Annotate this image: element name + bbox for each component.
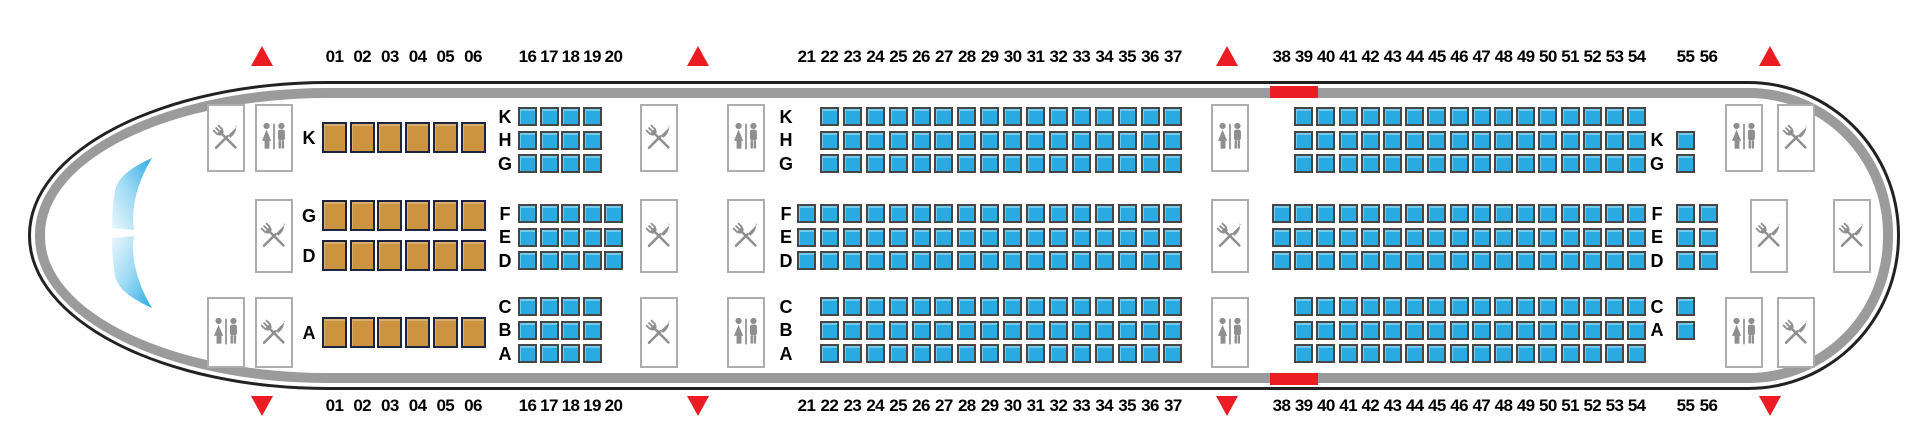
seat-44B[interactable] xyxy=(1405,321,1424,340)
seat-27F[interactable] xyxy=(934,204,953,223)
seat-45D[interactable] xyxy=(1427,251,1446,270)
seat-33F[interactable] xyxy=(1072,204,1091,223)
seat-36G[interactable] xyxy=(1141,154,1160,173)
seat-55C[interactable] xyxy=(1676,297,1695,316)
seat-17D[interactable] xyxy=(540,251,559,270)
seat-19A[interactable] xyxy=(583,344,602,363)
seat-53A[interactable] xyxy=(1605,344,1624,363)
seat-16A[interactable] xyxy=(518,344,537,363)
seat-30C[interactable] xyxy=(1003,297,1022,316)
seat-16C[interactable] xyxy=(518,297,537,316)
seat-19B[interactable] xyxy=(583,321,602,340)
seat-03A[interactable] xyxy=(377,317,402,348)
seat-43E[interactable] xyxy=(1383,228,1402,247)
seat-49C[interactable] xyxy=(1516,297,1535,316)
seat-18G[interactable] xyxy=(561,154,580,173)
seat-19E[interactable] xyxy=(583,228,602,247)
seat-06A[interactable] xyxy=(461,317,486,348)
seat-40H[interactable] xyxy=(1316,131,1335,150)
seat-24A[interactable] xyxy=(866,344,885,363)
seat-17K[interactable] xyxy=(540,107,559,126)
seat-38F[interactable] xyxy=(1272,204,1291,223)
seat-22D[interactable] xyxy=(820,251,839,270)
seat-55D[interactable] xyxy=(1676,251,1695,270)
seat-25G[interactable] xyxy=(889,154,908,173)
seat-44D[interactable] xyxy=(1405,251,1424,270)
seat-32G[interactable] xyxy=(1049,154,1068,173)
seat-29H[interactable] xyxy=(980,131,999,150)
seat-19F[interactable] xyxy=(583,204,602,223)
seat-33H[interactable] xyxy=(1072,131,1091,150)
seat-51F[interactable] xyxy=(1561,204,1580,223)
seat-35K[interactable] xyxy=(1118,107,1137,126)
seat-21E[interactable] xyxy=(797,228,816,247)
seat-49A[interactable] xyxy=(1516,344,1535,363)
seat-56E[interactable] xyxy=(1699,228,1718,247)
seat-42F[interactable] xyxy=(1361,204,1380,223)
seat-48G[interactable] xyxy=(1494,154,1513,173)
seat-16K[interactable] xyxy=(518,107,537,126)
seat-25K[interactable] xyxy=(889,107,908,126)
seat-50K[interactable] xyxy=(1538,107,1557,126)
seat-45K[interactable] xyxy=(1427,107,1446,126)
seat-45C[interactable] xyxy=(1427,297,1446,316)
seat-04K[interactable] xyxy=(405,122,430,153)
seat-52D[interactable] xyxy=(1583,251,1602,270)
seat-04A[interactable] xyxy=(405,317,430,348)
seat-32K[interactable] xyxy=(1049,107,1068,126)
seat-32F[interactable] xyxy=(1049,204,1068,223)
seat-53H[interactable] xyxy=(1605,131,1624,150)
seat-23D[interactable] xyxy=(843,251,862,270)
seat-47C[interactable] xyxy=(1472,297,1491,316)
seat-18A[interactable] xyxy=(561,344,580,363)
seat-18D[interactable] xyxy=(561,251,580,270)
seat-40G[interactable] xyxy=(1316,154,1335,173)
seat-48H[interactable] xyxy=(1494,131,1513,150)
seat-38D[interactable] xyxy=(1272,251,1291,270)
seat-32H[interactable] xyxy=(1049,131,1068,150)
seat-31B[interactable] xyxy=(1026,321,1045,340)
seat-22F[interactable] xyxy=(820,204,839,223)
seat-45E[interactable] xyxy=(1427,228,1446,247)
seat-34A[interactable] xyxy=(1095,344,1114,363)
seat-26C[interactable] xyxy=(912,297,931,316)
seat-44K[interactable] xyxy=(1405,107,1424,126)
seat-19D[interactable] xyxy=(583,251,602,270)
seat-36E[interactable] xyxy=(1141,228,1160,247)
seat-28B[interactable] xyxy=(957,321,976,340)
seat-32E[interactable] xyxy=(1049,228,1068,247)
seat-41G[interactable] xyxy=(1339,154,1358,173)
seat-41H[interactable] xyxy=(1339,131,1358,150)
seat-26A[interactable] xyxy=(912,344,931,363)
seat-56F[interactable] xyxy=(1699,204,1718,223)
seat-41F[interactable] xyxy=(1339,204,1358,223)
seat-43K[interactable] xyxy=(1383,107,1402,126)
seat-53C[interactable] xyxy=(1605,297,1624,316)
seat-22B[interactable] xyxy=(820,321,839,340)
seat-54F[interactable] xyxy=(1627,204,1646,223)
seat-36F[interactable] xyxy=(1141,204,1160,223)
seat-22G[interactable] xyxy=(820,154,839,173)
seat-29C[interactable] xyxy=(980,297,999,316)
seat-49K[interactable] xyxy=(1516,107,1535,126)
seat-46K[interactable] xyxy=(1450,107,1469,126)
seat-52G[interactable] xyxy=(1583,154,1602,173)
seat-30H[interactable] xyxy=(1003,131,1022,150)
seat-52E[interactable] xyxy=(1583,228,1602,247)
seat-30G[interactable] xyxy=(1003,154,1022,173)
seat-25C[interactable] xyxy=(889,297,908,316)
seat-06G[interactable] xyxy=(461,200,486,231)
seat-48F[interactable] xyxy=(1494,204,1513,223)
seat-26B[interactable] xyxy=(912,321,931,340)
seat-51E[interactable] xyxy=(1561,228,1580,247)
seat-32B[interactable] xyxy=(1049,321,1068,340)
seat-52B[interactable] xyxy=(1583,321,1602,340)
seat-36D[interactable] xyxy=(1141,251,1160,270)
seat-31E[interactable] xyxy=(1026,228,1045,247)
seat-53K[interactable] xyxy=(1605,107,1624,126)
seat-25H[interactable] xyxy=(889,131,908,150)
seat-27G[interactable] xyxy=(934,154,953,173)
seat-19K[interactable] xyxy=(583,107,602,126)
seat-42B[interactable] xyxy=(1361,321,1380,340)
seat-53G[interactable] xyxy=(1605,154,1624,173)
seat-54C[interactable] xyxy=(1627,297,1646,316)
seat-39D[interactable] xyxy=(1294,251,1313,270)
seat-23G[interactable] xyxy=(843,154,862,173)
seat-49H[interactable] xyxy=(1516,131,1535,150)
seat-54K[interactable] xyxy=(1627,107,1646,126)
seat-54G[interactable] xyxy=(1627,154,1646,173)
seat-23E[interactable] xyxy=(843,228,862,247)
seat-35G[interactable] xyxy=(1118,154,1137,173)
seat-01A[interactable] xyxy=(322,317,347,348)
seat-30K[interactable] xyxy=(1003,107,1022,126)
seat-39H[interactable] xyxy=(1294,131,1313,150)
seat-27C[interactable] xyxy=(934,297,953,316)
seat-51A[interactable] xyxy=(1561,344,1580,363)
seat-34D[interactable] xyxy=(1095,251,1114,270)
seat-18F[interactable] xyxy=(561,204,580,223)
seat-55F[interactable] xyxy=(1676,204,1695,223)
seat-46A[interactable] xyxy=(1450,344,1469,363)
seat-53D[interactable] xyxy=(1605,251,1624,270)
seat-46G[interactable] xyxy=(1450,154,1469,173)
seat-29G[interactable] xyxy=(980,154,999,173)
seat-16G[interactable] xyxy=(518,154,537,173)
seat-23C[interactable] xyxy=(843,297,862,316)
seat-35A[interactable] xyxy=(1118,344,1137,363)
seat-42C[interactable] xyxy=(1361,297,1380,316)
seat-51K[interactable] xyxy=(1561,107,1580,126)
seat-18H[interactable] xyxy=(561,131,580,150)
seat-44G[interactable] xyxy=(1405,154,1424,173)
seat-55E[interactable] xyxy=(1676,228,1695,247)
seat-54H[interactable] xyxy=(1627,131,1646,150)
seat-17C[interactable] xyxy=(540,297,559,316)
seat-24F[interactable] xyxy=(866,204,885,223)
seat-31A[interactable] xyxy=(1026,344,1045,363)
seat-40A[interactable] xyxy=(1316,344,1335,363)
seat-25B[interactable] xyxy=(889,321,908,340)
seat-34B[interactable] xyxy=(1095,321,1114,340)
seat-24H[interactable] xyxy=(866,131,885,150)
seat-16E[interactable] xyxy=(518,228,537,247)
seat-27K[interactable] xyxy=(934,107,953,126)
seat-23F[interactable] xyxy=(843,204,862,223)
seat-37D[interactable] xyxy=(1163,251,1182,270)
seat-43C[interactable] xyxy=(1383,297,1402,316)
seat-19G[interactable] xyxy=(583,154,602,173)
seat-24B[interactable] xyxy=(866,321,885,340)
seat-18E[interactable] xyxy=(561,228,580,247)
seat-37K[interactable] xyxy=(1163,107,1182,126)
seat-29D[interactable] xyxy=(980,251,999,270)
seat-40B[interactable] xyxy=(1316,321,1335,340)
seat-32C[interactable] xyxy=(1049,297,1068,316)
seat-18K[interactable] xyxy=(561,107,580,126)
seat-46H[interactable] xyxy=(1450,131,1469,150)
seat-40K[interactable] xyxy=(1316,107,1335,126)
seat-24D[interactable] xyxy=(866,251,885,270)
seat-19C[interactable] xyxy=(583,297,602,316)
seat-56D[interactable] xyxy=(1699,251,1718,270)
seat-53F[interactable] xyxy=(1605,204,1624,223)
seat-45G[interactable] xyxy=(1427,154,1446,173)
seat-05D[interactable] xyxy=(433,240,458,271)
seat-39K[interactable] xyxy=(1294,107,1313,126)
seat-33C[interactable] xyxy=(1072,297,1091,316)
seat-46D[interactable] xyxy=(1450,251,1469,270)
seat-45A[interactable] xyxy=(1427,344,1446,363)
seat-44A[interactable] xyxy=(1405,344,1424,363)
seat-47F[interactable] xyxy=(1472,204,1491,223)
seat-28D[interactable] xyxy=(957,251,976,270)
seat-51B[interactable] xyxy=(1561,321,1580,340)
seat-31K[interactable] xyxy=(1026,107,1045,126)
seat-39A[interactable] xyxy=(1294,344,1313,363)
seat-03D[interactable] xyxy=(377,240,402,271)
seat-40C[interactable] xyxy=(1316,297,1335,316)
seat-50D[interactable] xyxy=(1538,251,1557,270)
seat-41B[interactable] xyxy=(1339,321,1358,340)
seat-44C[interactable] xyxy=(1405,297,1424,316)
seat-54D[interactable] xyxy=(1627,251,1646,270)
seat-55G[interactable] xyxy=(1676,154,1695,173)
seat-26H[interactable] xyxy=(912,131,931,150)
seat-52H[interactable] xyxy=(1583,131,1602,150)
seat-37A[interactable] xyxy=(1163,344,1182,363)
seat-47H[interactable] xyxy=(1472,131,1491,150)
seat-48D[interactable] xyxy=(1494,251,1513,270)
seat-39F[interactable] xyxy=(1294,204,1313,223)
seat-50C[interactable] xyxy=(1538,297,1557,316)
seat-48C[interactable] xyxy=(1494,297,1513,316)
seat-35H[interactable] xyxy=(1118,131,1137,150)
seat-34H[interactable] xyxy=(1095,131,1114,150)
seat-46C[interactable] xyxy=(1450,297,1469,316)
seat-23H[interactable] xyxy=(843,131,862,150)
seat-05A[interactable] xyxy=(433,317,458,348)
seat-30B[interactable] xyxy=(1003,321,1022,340)
seat-52C[interactable] xyxy=(1583,297,1602,316)
seat-42H[interactable] xyxy=(1361,131,1380,150)
seat-34G[interactable] xyxy=(1095,154,1114,173)
seat-50B[interactable] xyxy=(1538,321,1557,340)
seat-28E[interactable] xyxy=(957,228,976,247)
seat-01G[interactable] xyxy=(322,200,347,231)
seat-38E[interactable] xyxy=(1272,228,1291,247)
seat-17F[interactable] xyxy=(540,204,559,223)
seat-27A[interactable] xyxy=(934,344,953,363)
seat-47K[interactable] xyxy=(1472,107,1491,126)
seat-51D[interactable] xyxy=(1561,251,1580,270)
seat-18C[interactable] xyxy=(561,297,580,316)
seat-31H[interactable] xyxy=(1026,131,1045,150)
seat-25D[interactable] xyxy=(889,251,908,270)
seat-23B[interactable] xyxy=(843,321,862,340)
seat-35D[interactable] xyxy=(1118,251,1137,270)
seat-25F[interactable] xyxy=(889,204,908,223)
seat-19H[interactable] xyxy=(583,131,602,150)
seat-17B[interactable] xyxy=(540,321,559,340)
seat-42G[interactable] xyxy=(1361,154,1380,173)
seat-35C[interactable] xyxy=(1118,297,1137,316)
seat-20F[interactable] xyxy=(604,204,623,223)
seat-33D[interactable] xyxy=(1072,251,1091,270)
seat-43H[interactable] xyxy=(1383,131,1402,150)
seat-41C[interactable] xyxy=(1339,297,1358,316)
seat-03G[interactable] xyxy=(377,200,402,231)
seat-49B[interactable] xyxy=(1516,321,1535,340)
seat-37C[interactable] xyxy=(1163,297,1182,316)
seat-40F[interactable] xyxy=(1316,204,1335,223)
seat-55A[interactable] xyxy=(1676,321,1695,340)
seat-51H[interactable] xyxy=(1561,131,1580,150)
seat-21D[interactable] xyxy=(797,251,816,270)
seat-23A[interactable] xyxy=(843,344,862,363)
seat-27H[interactable] xyxy=(934,131,953,150)
seat-55K[interactable] xyxy=(1676,131,1695,150)
seat-16H[interactable] xyxy=(518,131,537,150)
seat-52A[interactable] xyxy=(1583,344,1602,363)
seat-49F[interactable] xyxy=(1516,204,1535,223)
seat-47D[interactable] xyxy=(1472,251,1491,270)
seat-31D[interactable] xyxy=(1026,251,1045,270)
seat-50G[interactable] xyxy=(1538,154,1557,173)
seat-18B[interactable] xyxy=(561,321,580,340)
seat-02D[interactable] xyxy=(350,240,375,271)
seat-46E[interactable] xyxy=(1450,228,1469,247)
seat-20E[interactable] xyxy=(604,228,623,247)
seat-36A[interactable] xyxy=(1141,344,1160,363)
seat-29A[interactable] xyxy=(980,344,999,363)
seat-06K[interactable] xyxy=(461,122,486,153)
seat-26K[interactable] xyxy=(912,107,931,126)
seat-39E[interactable] xyxy=(1294,228,1313,247)
seat-47G[interactable] xyxy=(1472,154,1491,173)
seat-24G[interactable] xyxy=(866,154,885,173)
seat-42D[interactable] xyxy=(1361,251,1380,270)
seat-48E[interactable] xyxy=(1494,228,1513,247)
seat-33E[interactable] xyxy=(1072,228,1091,247)
seat-28G[interactable] xyxy=(957,154,976,173)
seat-04D[interactable] xyxy=(405,240,430,271)
seat-30F[interactable] xyxy=(1003,204,1022,223)
seat-31G[interactable] xyxy=(1026,154,1045,173)
seat-54E[interactable] xyxy=(1627,228,1646,247)
seat-26D[interactable] xyxy=(912,251,931,270)
seat-25E[interactable] xyxy=(889,228,908,247)
seat-49E[interactable] xyxy=(1516,228,1535,247)
seat-26G[interactable] xyxy=(912,154,931,173)
seat-39C[interactable] xyxy=(1294,297,1313,316)
seat-22C[interactable] xyxy=(820,297,839,316)
seat-31F[interactable] xyxy=(1026,204,1045,223)
seat-53E[interactable] xyxy=(1605,228,1624,247)
seat-44F[interactable] xyxy=(1405,204,1424,223)
seat-43B[interactable] xyxy=(1383,321,1402,340)
seat-33A[interactable] xyxy=(1072,344,1091,363)
seat-49D[interactable] xyxy=(1516,251,1535,270)
seat-28F[interactable] xyxy=(957,204,976,223)
seat-16D[interactable] xyxy=(518,251,537,270)
seat-35F[interactable] xyxy=(1118,204,1137,223)
seat-02A[interactable] xyxy=(350,317,375,348)
seat-30D[interactable] xyxy=(1003,251,1022,270)
seat-33B[interactable] xyxy=(1072,321,1091,340)
seat-01D[interactable] xyxy=(322,240,347,271)
seat-26F[interactable] xyxy=(912,204,931,223)
seat-25A[interactable] xyxy=(889,344,908,363)
seat-48K[interactable] xyxy=(1494,107,1513,126)
seat-04G[interactable] xyxy=(405,200,430,231)
seat-17G[interactable] xyxy=(540,154,559,173)
seat-52F[interactable] xyxy=(1583,204,1602,223)
seat-33G[interactable] xyxy=(1072,154,1091,173)
seat-24E[interactable] xyxy=(866,228,885,247)
seat-01K[interactable] xyxy=(322,122,347,153)
seat-37G[interactable] xyxy=(1163,154,1182,173)
seat-36K[interactable] xyxy=(1141,107,1160,126)
seat-36C[interactable] xyxy=(1141,297,1160,316)
seat-26E[interactable] xyxy=(912,228,931,247)
seat-27E[interactable] xyxy=(934,228,953,247)
seat-35E[interactable] xyxy=(1118,228,1137,247)
seat-40D[interactable] xyxy=(1316,251,1335,270)
seat-22K[interactable] xyxy=(820,107,839,126)
seat-22A[interactable] xyxy=(820,344,839,363)
seat-41E[interactable] xyxy=(1339,228,1358,247)
seat-17E[interactable] xyxy=(540,228,559,247)
seat-24K[interactable] xyxy=(866,107,885,126)
seat-06D[interactable] xyxy=(461,240,486,271)
seat-50F[interactable] xyxy=(1538,204,1557,223)
seat-45F[interactable] xyxy=(1427,204,1446,223)
seat-34F[interactable] xyxy=(1095,204,1114,223)
seat-29K[interactable] xyxy=(980,107,999,126)
seat-43F[interactable] xyxy=(1383,204,1402,223)
seat-49G[interactable] xyxy=(1516,154,1535,173)
seat-05K[interactable] xyxy=(433,122,458,153)
seat-43D[interactable] xyxy=(1383,251,1402,270)
seat-32D[interactable] xyxy=(1049,251,1068,270)
seat-02G[interactable] xyxy=(350,200,375,231)
seat-28K[interactable] xyxy=(957,107,976,126)
